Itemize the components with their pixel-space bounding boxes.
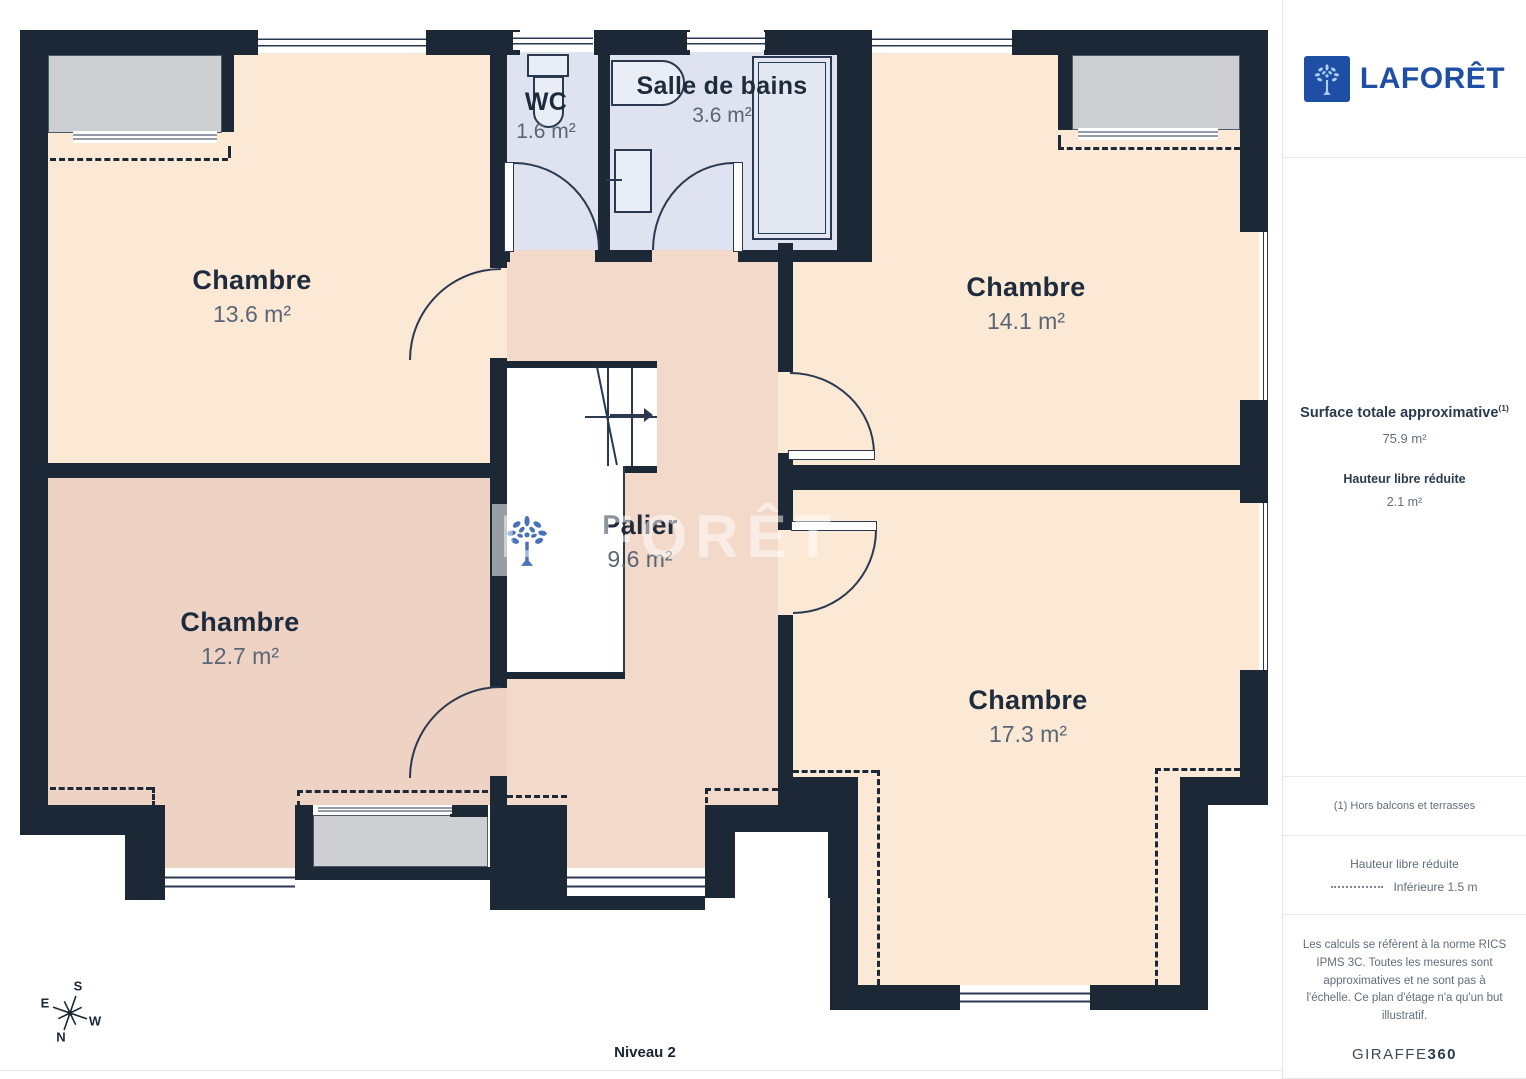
- window: [687, 32, 765, 50]
- wall-segment: [20, 463, 507, 478]
- wall-segment: [490, 805, 567, 910]
- tree-icon: [1311, 60, 1343, 98]
- wall-segment: [1240, 400, 1268, 503]
- reduced-height-dashed-line: [1155, 768, 1240, 771]
- legend-item: Inférieure 1.5 m: [1331, 880, 1477, 894]
- wall-segment: [1240, 30, 1268, 232]
- room-name: Chambre: [180, 607, 299, 638]
- room-name: Salle de bains: [637, 72, 808, 101]
- reduced-height-dashed-line: [1058, 135, 1061, 147]
- room-floor: [567, 805, 705, 868]
- reduced-height-dashed-line: [297, 790, 488, 793]
- toilet-tank: [527, 54, 569, 77]
- room-label-wc: WC 1.6 m²: [516, 88, 576, 144]
- compass-south-label: S: [74, 979, 83, 994]
- panel-legend-section: Hauteur libre réduite Inférieure 1.5 m: [1283, 836, 1526, 915]
- door-opening: [510, 250, 595, 262]
- wall-segment: [1180, 777, 1268, 805]
- watermark-text: LAFORÊT: [500, 502, 839, 571]
- wall-segment: [778, 777, 858, 805]
- room-area: 17.3 m²: [968, 721, 1087, 748]
- reduced-height-dashed-line: [297, 790, 300, 807]
- credit-logo: GIRAFFE360: [1283, 1046, 1526, 1063]
- dotted-line-sample: [1331, 886, 1383, 888]
- stair-tread-line: [585, 416, 657, 418]
- panel-footnote-section: (1) Hors balcons et terrasses: [1283, 777, 1526, 836]
- window: [567, 868, 705, 896]
- wall-segment: [505, 896, 705, 910]
- wall-segment: [598, 52, 610, 250]
- wall-segment: [450, 805, 488, 817]
- door-leaf-wc: [504, 162, 514, 252]
- stairwell-void: [735, 832, 828, 898]
- window: [318, 805, 452, 814]
- reduced-height-dashed-line: [1058, 147, 1240, 150]
- brand-logo-square: [1304, 56, 1350, 102]
- reduced-height-dashed-line: [705, 788, 708, 867]
- reduced-height-dashed-line: [228, 146, 231, 158]
- room-floor: [152, 805, 295, 870]
- panel-disclaimer-section: Les calculs se réfèrent à la norme RICS …: [1283, 915, 1526, 1079]
- room-label-chambre-14-1: Chambre 14.1 m²: [966, 272, 1085, 335]
- brand-logo-text: LAFORÊT: [1360, 62, 1505, 96]
- level-label: Niveau 2: [545, 1044, 745, 1061]
- door-leaf-salle-de-bains: [733, 162, 743, 252]
- reduced-height-title: Hauteur libre réduite: [1283, 472, 1526, 486]
- disclaimer-text: Les calculs se réfèrent à la norme RICS …: [1301, 937, 1509, 1026]
- reduced-height-dashed-line: [152, 787, 155, 807]
- wall-segment: [1180, 805, 1208, 1010]
- room-label-chambre-13-6: Chambre 13.6 m²: [192, 265, 311, 328]
- reduced-height-dashed-line: [50, 158, 228, 161]
- room-name: WC: [516, 88, 576, 117]
- window: [258, 32, 426, 53]
- room-floor: [858, 805, 1180, 985]
- panel-surface-section: Surface totale approximative(1) 75.9 m² …: [1283, 158, 1526, 777]
- legend-title: Hauteur libre réduite: [1350, 857, 1459, 871]
- panel-logo-section: LAFORÊT: [1283, 0, 1526, 158]
- info-panel: LAFORÊT Surface totale approximative(1) …: [1282, 0, 1526, 1079]
- room-floor: [858, 777, 1180, 805]
- door-opening: [652, 250, 738, 262]
- footnote-text: (1) Hors balcons et terrasses: [1334, 800, 1475, 812]
- room-area: 1.6 m²: [516, 120, 576, 144]
- room-area: 13.6 m²: [192, 301, 311, 328]
- stair-direction-arrow-head: [644, 408, 653, 422]
- window: [73, 131, 217, 143]
- door-leaf-chambre-14-1: [788, 450, 875, 460]
- reduced-height-gray-zone: [48, 55, 222, 133]
- reduced-height-dashed-line: [50, 787, 152, 790]
- footnote-ref: (1): [1498, 403, 1508, 413]
- room-label-chambre-17-3: Chambre 17.3 m²: [968, 685, 1087, 748]
- window: [960, 985, 1090, 1010]
- cabinet-handle-line: [606, 179, 622, 181]
- room-area: 12.7 m²: [180, 643, 299, 670]
- window: [165, 868, 295, 896]
- reduced-height-value: 2.1 m²: [1283, 495, 1526, 509]
- window: [1259, 503, 1272, 670]
- reduced-height-gray-zone: [313, 815, 488, 867]
- room-name: Chambre: [966, 272, 1085, 303]
- window: [1259, 232, 1272, 400]
- wall-segment: [1240, 670, 1268, 777]
- wall-segment: [20, 30, 48, 835]
- reduced-height-dashed-line: [1155, 768, 1158, 985]
- wall-segment: [295, 867, 505, 880]
- wall-segment: [222, 52, 234, 132]
- brand-logo: LAFORÊT: [1283, 0, 1526, 158]
- compass-north-label: N: [56, 1030, 65, 1045]
- window: [1078, 128, 1218, 140]
- wall-segment: [507, 672, 625, 679]
- room-name: Chambre: [968, 685, 1087, 716]
- room-name: Chambre: [192, 265, 311, 296]
- room-label-chambre-12-7: Chambre 12.7 m²: [180, 607, 299, 670]
- reduced-height-dashed-line: [877, 770, 880, 985]
- compass-east-label: E: [41, 996, 50, 1011]
- wall-segment: [793, 465, 1240, 490]
- bathroom-cabinet: [614, 149, 652, 213]
- reduced-height-dashed-line: [705, 788, 778, 791]
- surface-total-title: Surface totale approximative(1): [1283, 403, 1526, 421]
- reduced-height-dashed-line: [793, 770, 877, 773]
- reduced-height-dashed-line: [507, 795, 567, 798]
- compass-west-label: W: [89, 1014, 101, 1029]
- room-area: 14.1 m²: [966, 308, 1085, 335]
- reduced-height-gray-zone: [1072, 55, 1240, 130]
- wall-segment: [837, 30, 872, 262]
- room-label-salle-de-bains: Salle de bains 3.6 m²: [637, 72, 808, 128]
- wall-segment: [1012, 30, 1268, 55]
- room-area: 3.6 m²: [637, 104, 808, 128]
- window: [513, 32, 593, 50]
- wall-segment: [507, 361, 657, 368]
- wall-segment: [1058, 52, 1072, 130]
- wall-segment: [125, 805, 165, 900]
- floor-plan-page: Chambre 13.6 m² Chambre 14.1 m² Chambre …: [0, 0, 1526, 1079]
- window: [872, 32, 1012, 53]
- surface-total-value: 75.9 m²: [1283, 431, 1526, 446]
